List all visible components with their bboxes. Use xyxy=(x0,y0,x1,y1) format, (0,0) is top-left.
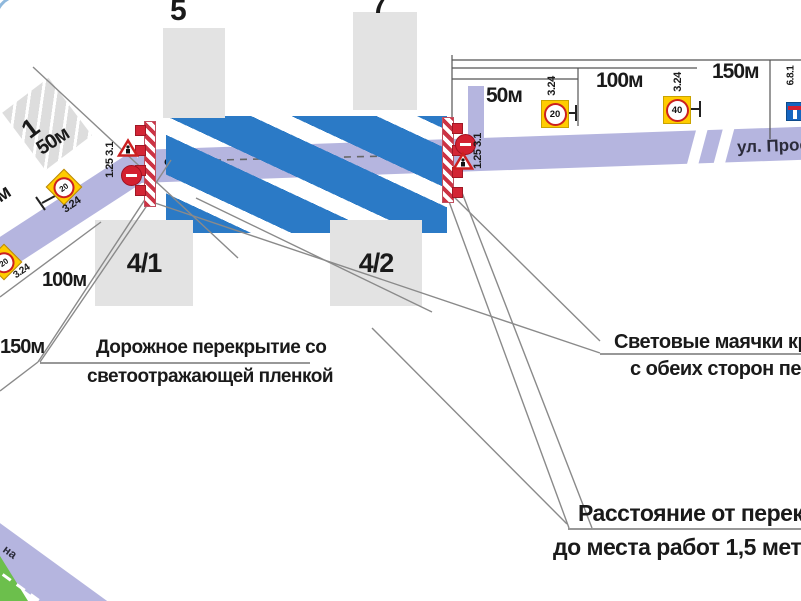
traffic-scheme-canvas: 5 7 1 4/1 4/2 xyxy=(0,0,801,601)
roadworks-sign-icon xyxy=(453,152,473,170)
annotation-covering-line2: светоотражающей пленкой xyxy=(87,366,333,388)
speed-limit-40-value: 40 xyxy=(672,105,683,116)
dead-end-sign-icon xyxy=(786,102,801,121)
annotation-covering-line1: Дорожное перекрытие со xyxy=(96,337,326,359)
sign-code-6-8-1: 6.8.1 xyxy=(786,56,797,96)
dim-left-150m: 150м xyxy=(0,336,44,359)
sign-code-3-24: 3.24 xyxy=(546,68,558,104)
speed-limit-20-value: 20 xyxy=(58,181,70,193)
speed-limit-20-value: 20 xyxy=(550,109,561,120)
speed-limit-20-value: 20 xyxy=(0,256,10,268)
dim-top-100m: 100м xyxy=(596,69,643,93)
leader-lines xyxy=(0,67,600,528)
sign-code-3-24: 3.24 xyxy=(672,64,684,100)
dim-top-150m: 150м xyxy=(712,60,759,84)
beacon-lamp xyxy=(452,123,463,134)
dim-top-50m: 50м xyxy=(486,84,522,108)
corner-arc xyxy=(0,0,20,24)
barrier-right-sign-codes: 1.25 3.1 xyxy=(472,129,484,173)
dim-left-100m: 100м xyxy=(42,269,86,292)
annotation-distance-line1: Расстояние от перекрыти xyxy=(578,500,801,527)
annotation-distance-line2: до места работ 1,5 метра xyxy=(553,534,801,561)
beacon-lamp xyxy=(135,185,146,196)
beacon-lamp xyxy=(135,125,146,136)
speed-limit-20-sign: 20 xyxy=(541,100,569,128)
beacon-lamp xyxy=(452,187,463,198)
roadworks-sign-icon xyxy=(118,139,138,157)
speed-limit-40-sign: 40 xyxy=(663,96,691,124)
street-name-main: ул. Проезж xyxy=(737,134,801,157)
no-entry-sign-icon xyxy=(121,165,142,186)
barrier-left-sign-codes: 1.25 3.1 xyxy=(104,138,116,182)
annotation-beacons-line1: Световые маячки красн xyxy=(614,331,801,354)
annotation-beacons-line2: с обеих сторон перек xyxy=(630,358,801,381)
